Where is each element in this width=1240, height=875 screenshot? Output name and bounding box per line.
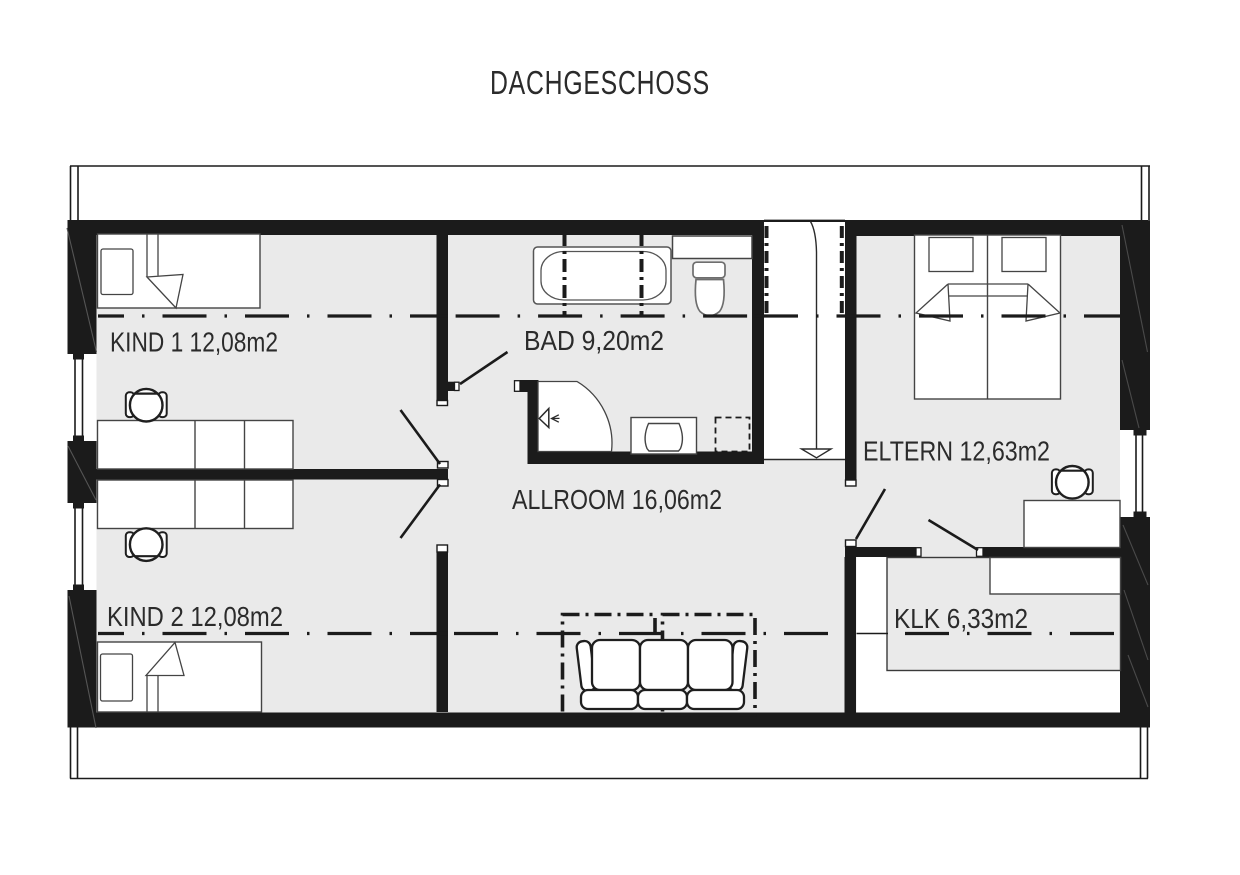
svg-text:KIND 1 12,08m2: KIND 1 12,08m2 [110, 327, 278, 358]
svg-text:KIND 2 12,08m2: KIND 2 12,08m2 [107, 601, 283, 632]
svg-text:KLK 6,33m2: KLK 6,33m2 [894, 603, 1028, 634]
svg-text:ELTERN 12,63m2: ELTERN 12,63m2 [863, 436, 1050, 467]
svg-text:BAD 9,20m2: BAD 9,20m2 [524, 325, 664, 356]
svg-text:DACHGESCHOSS: DACHGESCHOSS [490, 64, 710, 101]
svg-text:ALLROOM 16,06m2: ALLROOM 16,06m2 [512, 484, 722, 515]
